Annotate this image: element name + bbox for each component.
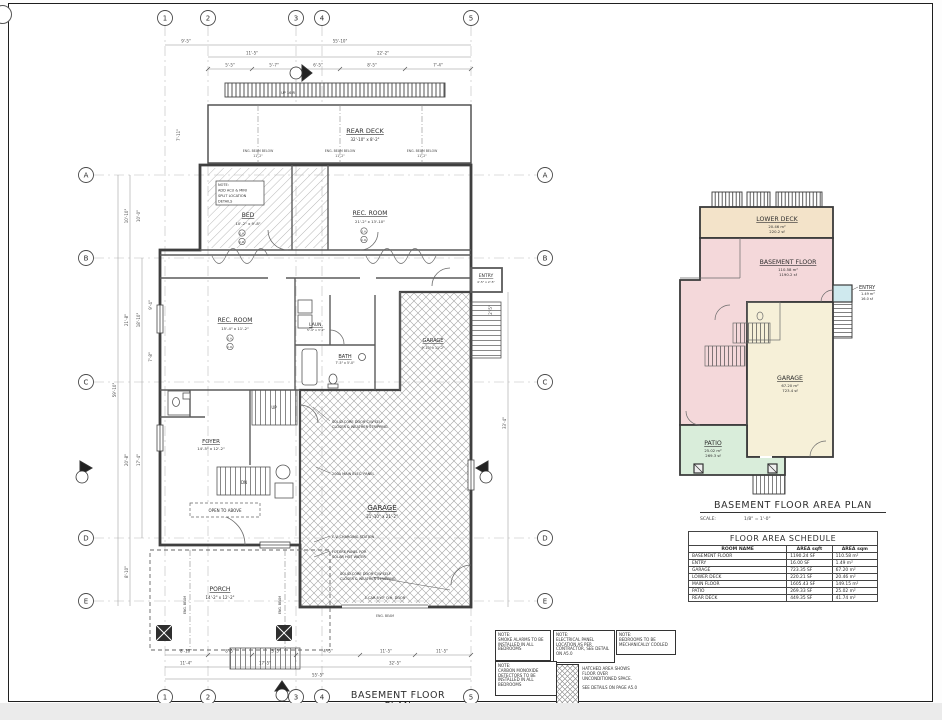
dim-text: 7'-11" (176, 129, 181, 141)
entry-label: ENTRY (479, 273, 494, 279)
legend-line1: HATCHED AREA SHOWS FLOOR OVER UNCONDITIO… (582, 666, 632, 681)
basement-floor-plan-drawing: REAR DECK 32'-10" x 8'-2" ENG. BEAM BELO… (30, 5, 570, 705)
area-sqm: 25.02 m² (832, 588, 877, 595)
area-sqm: 20.46 m² (832, 574, 877, 581)
sheet-bottom-margin (0, 703, 942, 720)
note-mechanically-cooled: NOTE: BEDROOMS TO BE MECHANICALLY COOLED (616, 630, 676, 655)
grid-bubble-A: A (84, 172, 89, 180)
toilet (329, 374, 337, 384)
grid-bubble-B: B (543, 255, 548, 263)
note-electrical-panel: NOTE: ELECTRICAL PANEL LOCATION AS PER C… (553, 630, 615, 663)
hatch-legend: HATCHED AREA SHOWS FLOOR OVER UNCONDITIO… (556, 664, 642, 706)
grid-bubble-C: C (543, 379, 548, 387)
area-sqm: 149.15 m² (832, 581, 877, 588)
area-sqft: 723.35 SF (787, 567, 832, 574)
area-entry-label: ENTRY (859, 285, 876, 291)
area-sqm: 1.49 m² (832, 560, 877, 567)
area-patio-stairs (753, 475, 785, 494)
schedule-header: ROOM NAME (689, 546, 787, 553)
dim-text: 4'-5" (323, 649, 333, 654)
entry-dims: 4'-5" x 2'-5" (477, 280, 496, 284)
co-alarm-symbol: C.O. (361, 238, 367, 242)
smoke-alarm-symbol: S.A. (361, 229, 367, 233)
area-sqft: 449.35 SF (787, 595, 832, 602)
rear-deck-dims: 32'-10" x 8'-2" (351, 137, 380, 142)
grid-bubble-D: D (542, 535, 547, 543)
note-body: SMOKE ALARMS TO BE INSTALLED IN ALL BEDR… (498, 637, 544, 652)
foyer-dims: 14'-5" x 12'-2" (197, 446, 225, 451)
dim-text: 22'-2" (377, 51, 389, 56)
leader-text: 200A MAIN ELEC. PANEL (332, 472, 375, 476)
beam-note: ENG. BEAM BELOW (243, 149, 274, 153)
area-plan-scale: SCALE: 1/8" = 1'-0" (700, 517, 886, 522)
dim-text: 2'-5" (488, 305, 493, 315)
area-basement-floor-imperial: 1190.2 sf (779, 272, 797, 277)
dim-text: 33'-4" (502, 417, 507, 429)
grid-bubble-E: E (543, 598, 547, 606)
area-basement-floor-label: BASEMENT FLOOR (760, 259, 817, 266)
garage-upper-label: GARAGE (423, 338, 444, 344)
garage-hatched-area (300, 292, 471, 607)
bed-dims: 10'-2" x 9'-8" (235, 221, 260, 226)
grid-bubble-5: 5 (469, 694, 473, 702)
laundry-dims: 5'-4" x 3'-2" (307, 328, 326, 332)
schedule-header: AREA sqm (832, 546, 877, 553)
area-deck-railing (712, 192, 822, 207)
sink (359, 354, 366, 361)
table-row: ENTRY 16.00 SF 1.49 m² (689, 560, 878, 567)
grid-bubble-2: 2 (206, 694, 210, 702)
dim-text: 11'-5" (246, 51, 258, 56)
note-line: SPLIT LOCATION (218, 194, 247, 198)
dim-text: 5'-7" (269, 63, 279, 68)
grid-bubble-1: 1 (163, 694, 167, 702)
dim-text: 11'-5" (380, 649, 392, 654)
dim-text: 55'-10" (333, 39, 348, 44)
beam-note: ENG. BEAM BELOW (407, 149, 438, 153)
rec-room-upper-dims: 21'-2" x 13'-10" (355, 219, 385, 224)
grid-bubble-2: 2 (206, 15, 210, 23)
grid-bubble-3: 3 (294, 694, 298, 702)
schedule-title: FLOOR AREA SCHEDULE (689, 532, 878, 546)
leader-text: SOLID CORE DOOR C/W SELF (340, 572, 391, 576)
porch-dims: 14'-2" x 12'-2" (206, 595, 235, 600)
deck-railing (225, 83, 445, 97)
area-garage-label: GARAGE (777, 375, 803, 382)
area-sqm: 110.58 m² (832, 553, 877, 560)
porch-beam-note: ENG. BEAM (183, 596, 187, 614)
dim-text: 7'-4" (433, 63, 443, 68)
rear-deck-label: REAR DECK (346, 127, 384, 135)
room-name: GARAGE (689, 567, 787, 574)
stair-dn-label: DN (241, 480, 247, 485)
toilet (173, 398, 180, 407)
hatched-floor-areas (208, 168, 328, 248)
co-alarm-symbol: C.O. (227, 345, 233, 349)
stair-up-label: UP (271, 405, 277, 410)
bed-label: BED (242, 212, 255, 219)
area-patio-imperial: 269.3 sf (705, 453, 721, 458)
grid-bubble-4: 4 (320, 15, 325, 23)
deck-dim: 11'-2" (417, 154, 427, 158)
leader-text: SOLID CORE DOOR C/W SELF (332, 420, 383, 424)
note-smoke-alarms: NOTE: SMOKE ALARMS TO BE INSTALLED IN AL… (495, 630, 551, 661)
schedule-header-row: ROOM NAME AREA sqft AREA sqm (689, 546, 878, 553)
area-sqft: 220.21 SF (787, 574, 832, 581)
area-entry-stairs (833, 302, 852, 338)
grid-bubble-E: E (84, 598, 88, 606)
grid-bubble-A: A (543, 172, 548, 180)
dim-text: 3'-5" (271, 649, 281, 654)
leader-text: E.V. CHARGING STATION (332, 535, 375, 539)
grid-bubble-D: D (83, 535, 88, 543)
legend-line2: SEE DETAILS ON PAGE A5.0 (582, 685, 642, 690)
note-line: ADD ACU & MINI (218, 189, 247, 193)
open-to-above-label: OPEN TO ABOVE (209, 508, 242, 513)
area-sqft: 269.33 SF (787, 588, 832, 595)
note-body: CARBON MONOXIDE DETECTORS TO BE INSTALLE… (498, 668, 538, 687)
smoke-alarm-symbol: S.A. (227, 336, 233, 340)
hatch-swatch (556, 664, 579, 708)
leader-text: CLOSER & WEATHER STRIPPING (340, 577, 396, 581)
dim-text: 7'-8" (148, 352, 153, 362)
grid-bubble-5: 5 (469, 15, 473, 23)
grid-bubble-C: C (84, 379, 89, 387)
area-sqm: 41.74 m² (832, 595, 877, 602)
leader-text: FUTURE PANEL FOR (332, 550, 367, 554)
dim-text: 6'-5" (313, 63, 323, 68)
beam-note: ENG. BEAM BELOW (325, 149, 356, 153)
rec-room-lower-dims: 15'-4" x 11'-2" (221, 326, 249, 331)
area-entry-imperial: 16.0 sf (861, 297, 874, 301)
washer (298, 300, 312, 313)
garage-dims: 21'-10" x 21'-2" (366, 514, 398, 519)
dim-text: 10'-10" (124, 209, 129, 224)
area-patio-label: PATIO (704, 440, 722, 447)
dim-text: 18'-10" (136, 313, 141, 328)
garage-door-note: 1 CAR 8'x7' O.H. DOOR (365, 596, 406, 600)
entry-exterior-stairs (471, 302, 501, 358)
porch-stairs (230, 648, 300, 669)
porch-beam-note: ENG. BEAM (278, 596, 282, 614)
garage-upper-dims: 9'-10" x 11'-2" (421, 346, 445, 350)
foyer-label: FOYER (202, 439, 220, 445)
deck-dim: 11'-2" (335, 154, 345, 158)
grid-bubble-3: 3 (294, 15, 298, 23)
dim-text: 5'-5" (225, 63, 235, 68)
dim-text: 55'-5" (312, 673, 324, 678)
area-sqft: 1190.24 SF (787, 553, 832, 560)
rec-room-lower-label: REC. ROOM (218, 317, 253, 324)
basement-floor-area-plan-drawing: LOWER DECK 20.46 m² 220.2 sf BASEMENT FL… (640, 180, 940, 515)
grid-bubble-4: 4 (320, 694, 325, 702)
room-name: MAIN FLOOR (689, 581, 787, 588)
area-sqft: 1605.43 SF (787, 581, 832, 588)
rec-room-upper-label: REC. ROOM (353, 210, 388, 217)
note-line: NOTE: (218, 183, 229, 187)
table-row: MAIN FLOOR 1605.43 SF 149.15 m² (689, 581, 878, 588)
dim-text: 10'-0" (136, 210, 141, 222)
rear-deck: REAR DECK 32'-10" x 8'-2" ENG. BEAM BELO… (208, 83, 471, 163)
area-lower-deck-label: LOWER DECK (756, 216, 798, 223)
dim-text: 8'-10" (180, 649, 192, 654)
note-body: ELECTRICAL PANEL LOCATION AS PER CONTRAC… (556, 637, 609, 656)
table-row: PATIO 269.33 SF 25.02 m² (689, 588, 878, 595)
dim-text: 9'-4" (148, 300, 153, 310)
area-entry-metric: 1.49 m² (861, 292, 875, 296)
sink (183, 393, 190, 399)
grid-bubble-B: B (84, 255, 89, 263)
closet-scallops (212, 249, 436, 264)
dim-text: 11'-5" (436, 649, 448, 654)
room-name: LOWER DECK (689, 574, 787, 581)
room-name: REAR DECK (689, 595, 787, 602)
area-sqft: 16.00 SF (787, 560, 832, 567)
deck-up-label: UP 16 R (281, 91, 295, 95)
bathtub (302, 349, 317, 385)
bed-note-box: NOTE: ADD ACU & MINI SPLIT LOCATION DETA… (216, 181, 264, 205)
bath-label: BATH (338, 354, 352, 360)
area-sqm: 67.20 m² (832, 567, 877, 574)
scale-label: SCALE: (700, 517, 716, 522)
note-line: DETAILS (218, 200, 233, 204)
dim-text: 8'-10" (124, 566, 129, 578)
bath-dims: 7'-5" x 5'-0" (335, 361, 355, 365)
open-to-above: OPEN TO ABOVE (190, 503, 260, 517)
dim-text: 17'-4" (136, 454, 141, 466)
room-name: PATIO (689, 588, 787, 595)
table-row: GARAGE 723.35 SF 67.20 m² (689, 567, 878, 574)
dim-text: 8'-5" (225, 649, 235, 654)
table-row: BASEMENT FLOOR 1190.24 SF 110.58 m² (689, 553, 878, 560)
hot-water-tank (275, 483, 293, 498)
dim-text: 9'-5" (181, 39, 191, 44)
furnace (276, 465, 290, 479)
table-row: LOWER DECK 220.21 SF 20.46 m² (689, 574, 878, 581)
scale-value: 1/8" = 1'-0" (744, 517, 771, 522)
leader-text: SOLAR HOT WATER (332, 555, 366, 559)
table-row: REAR DECK 449.35 SF 41.74 m² (689, 595, 878, 602)
smoke-alarm-symbol: S.A. (239, 231, 245, 235)
note-co-detectors: NOTE: CARBON MONOXIDE DETECTORS TO BE IN… (495, 661, 557, 696)
schedule-header: AREA sqft (787, 546, 832, 553)
note-body: BEDROOMS TO BE MECHANICALLY COOLED (619, 637, 668, 647)
drawing-sheet: REAR DECK 32'-10" x 8'-2" ENG. BEAM BELO… (0, 0, 942, 720)
area-lower-deck-imperial: 220.2 sf (769, 229, 785, 234)
floor-area-schedule: FLOOR AREA SCHEDULE ROOM NAME AREA sqft … (688, 531, 878, 602)
dim-text: 32'-5" (389, 661, 401, 666)
porch-posts (156, 625, 292, 641)
dim-text: 17'-5" (259, 661, 271, 666)
room-name: BASEMENT FLOOR (689, 553, 787, 560)
dim-text: 21'-8" (124, 314, 129, 326)
area-entry (833, 285, 852, 302)
garage-label: GARAGE (367, 504, 396, 512)
deck-dim: 11'-2" (253, 154, 263, 158)
dim-text: 11'-4" (180, 661, 192, 666)
dim-text: 20'-8" (124, 454, 129, 466)
co-alarm-symbol: C.O. (239, 240, 245, 244)
beam-note: ENG. BEAM (376, 614, 394, 618)
room-name: ENTRY (689, 560, 787, 567)
dim-text: 59'-10" (112, 383, 117, 398)
leader-text: CLOSER & WEATHER STRIPPING (332, 425, 388, 429)
grid-bubble-1: 1 (163, 15, 167, 23)
area-plan-title: BASEMENT FLOOR AREA PLAN (700, 500, 886, 513)
porch-label: PORCH (210, 586, 231, 593)
dim-text: 8'-5" (367, 63, 377, 68)
area-garage-imperial: 723.4 sf (782, 388, 798, 393)
